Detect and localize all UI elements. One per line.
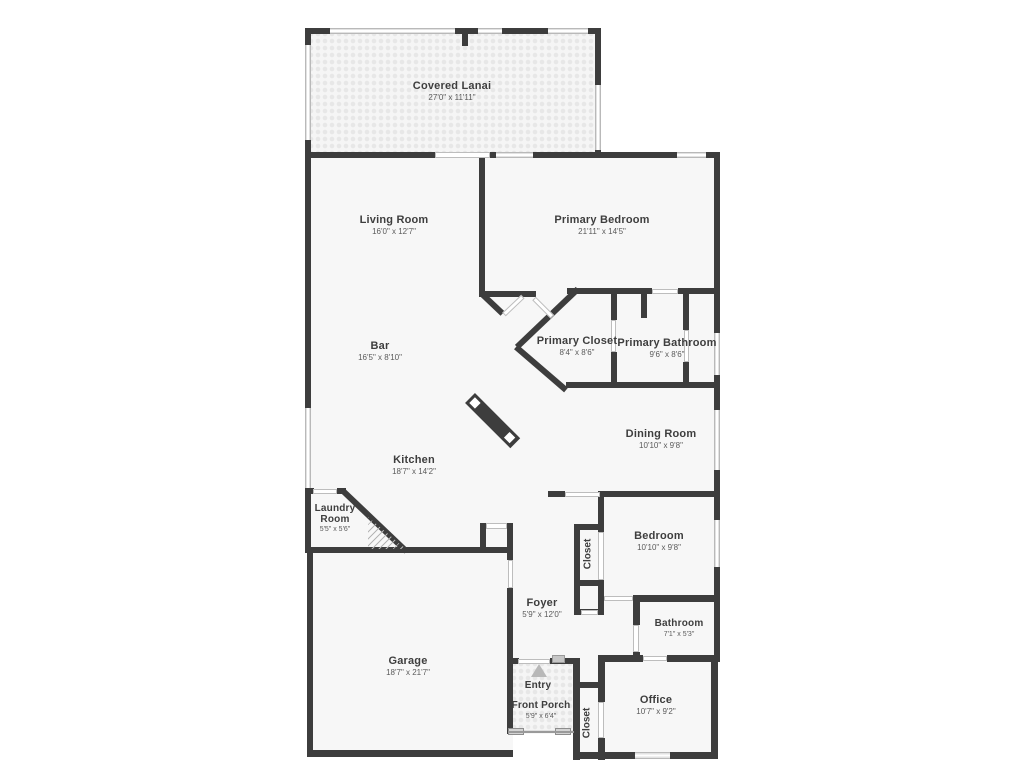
wall-segment <box>667 655 718 662</box>
wall-segment <box>307 750 513 757</box>
door-opening <box>508 560 513 588</box>
room-name: Primary Bathroom <box>617 337 716 349</box>
door-opening <box>598 702 604 738</box>
room-name: Kitchen <box>392 454 436 466</box>
wall-segment <box>574 580 604 586</box>
room-label-living-room: Living Room 16'0" x 12'7" <box>360 214 429 236</box>
room-label-foyer: Foyer 5'9" x 12'0" <box>522 597 561 619</box>
room-dimensions: 9'6" x 8'6" <box>617 350 716 359</box>
room-label-bathroom: Bathroom 7'1" x 5'3" <box>655 618 704 638</box>
room-name: Front Porch <box>512 700 571 712</box>
room-label-kitchen: Kitchen 18'7" x 14'2" <box>392 454 436 476</box>
wall-segment <box>598 655 605 702</box>
wall-segment <box>598 738 605 760</box>
wall-segment <box>711 655 718 759</box>
window <box>330 28 455 34</box>
room-dimensions: 7'1" x 5'3" <box>655 631 704 638</box>
door-opening <box>313 489 337 494</box>
room-dimensions: 8'4" x 8'6" <box>537 348 617 357</box>
door-opening <box>435 152 490 158</box>
room-name: Bathroom <box>655 618 704 630</box>
room-dimensions: 18'7" x 21'7" <box>386 668 430 677</box>
room-name: Covered Lanai <box>413 80 491 92</box>
wall-segment <box>566 382 720 388</box>
exterior-gap <box>513 734 573 757</box>
room-name: Entry <box>525 680 552 692</box>
room-label-front-porch: Front Porch 5'9" x 6'4" <box>512 700 571 720</box>
floor-plan: Covered Lanai 27'0" x 11'11" Living Room… <box>0 0 1024 768</box>
window <box>714 520 720 567</box>
window <box>305 45 311 140</box>
wall-segment <box>600 491 720 497</box>
room-dimensions: 5'5" x 5'6" <box>309 526 361 533</box>
window <box>595 85 601 150</box>
window <box>714 410 720 470</box>
wall-segment <box>605 655 643 662</box>
room-dimensions: 5'9" x 12'0" <box>522 610 561 619</box>
door-opening <box>598 532 604 580</box>
room-name: Primary Closet <box>537 335 617 347</box>
wall-segment <box>641 294 647 318</box>
room-label-primary-bedroom: Primary Bedroom 21'11" x 14'5" <box>554 214 649 236</box>
room-dimensions: 16'5" x 8'10" <box>358 353 402 362</box>
window <box>478 28 502 34</box>
wall-segment <box>573 682 605 688</box>
room-name: Foyer <box>522 597 561 609</box>
room-dimensions: 10'10" x 9'8" <box>626 441 697 450</box>
room-label-bedroom-closet: Closet <box>583 539 594 570</box>
door-opening <box>604 596 633 601</box>
room-name: Bedroom <box>634 530 684 542</box>
room-label-covered-lanai: Covered Lanai 27'0" x 11'11" <box>413 80 491 102</box>
wall-segment <box>548 491 565 497</box>
window <box>635 752 670 759</box>
wall-segment <box>714 152 720 662</box>
door-opening <box>581 610 598 615</box>
room-dimensions: 27'0" x 11'11" <box>413 93 491 102</box>
wall-segment <box>507 523 513 560</box>
room-label-laundry-room: Laundry Room 5'5" x 5'6" <box>309 503 361 533</box>
room-dimensions: 10'10" x 9'8" <box>634 543 684 552</box>
wall-segment <box>462 28 468 46</box>
room-dimensions: 21'11" x 14'5" <box>554 227 649 236</box>
room-dimensions: 5'9" x 6'4" <box>512 713 571 720</box>
wall-segment <box>633 595 720 602</box>
room-dimensions: 10'7" x 9'2" <box>636 707 675 716</box>
room-name: Living Room <box>360 214 429 226</box>
door-opening <box>486 523 507 529</box>
room-label-bedroom: Bedroom 10'10" x 9'8" <box>634 530 684 552</box>
room-label-entry: Entry <box>525 680 552 692</box>
door-opening <box>652 289 678 294</box>
room-name: Dining Room <box>626 428 697 440</box>
door-opening <box>565 492 600 497</box>
room-name: Bar <box>358 340 402 352</box>
wall-segment <box>611 294 617 320</box>
door-opening <box>633 625 639 652</box>
room-name: Office <box>636 694 675 706</box>
room-label-office: Office 10'7" x 9'2" <box>636 694 675 716</box>
window <box>677 152 706 158</box>
room-label-dining-room: Dining Room 10'10" x 9'8" <box>626 428 697 450</box>
porch-edge <box>508 731 574 733</box>
room-dimensions: 18'7" x 14'2" <box>392 467 436 476</box>
room-label-garage: Garage 18'7" x 21'7" <box>386 655 430 677</box>
door-opening <box>643 656 667 661</box>
room-name: Primary Bedroom <box>554 214 649 226</box>
entry-direction-arrow <box>531 664 547 677</box>
room-dimensions: 16'0" x 12'7" <box>360 227 429 236</box>
window <box>305 408 311 488</box>
room-label-primary-bathroom: Primary Bathroom 9'6" x 8'6" <box>617 337 716 359</box>
wall-segment <box>574 524 580 615</box>
wall-segment <box>683 294 689 330</box>
wall-segment <box>479 155 485 296</box>
room-label-office-closet: Closet <box>582 708 593 739</box>
room-name: Laundry Room <box>309 503 361 525</box>
wall-segment <box>567 288 652 294</box>
room-label-primary-closet: Primary Closet 8'4" x 8'6" <box>537 335 617 357</box>
entry-door-mat <box>552 655 565 663</box>
wall-segment <box>307 549 313 757</box>
window <box>548 28 588 34</box>
window <box>496 152 533 158</box>
wall-segment <box>633 602 640 625</box>
room-name: Garage <box>386 655 430 667</box>
room-label-bar: Bar 16'5" x 8'10" <box>358 340 402 362</box>
wall-segment <box>573 658 580 760</box>
wall-segment <box>574 524 604 530</box>
